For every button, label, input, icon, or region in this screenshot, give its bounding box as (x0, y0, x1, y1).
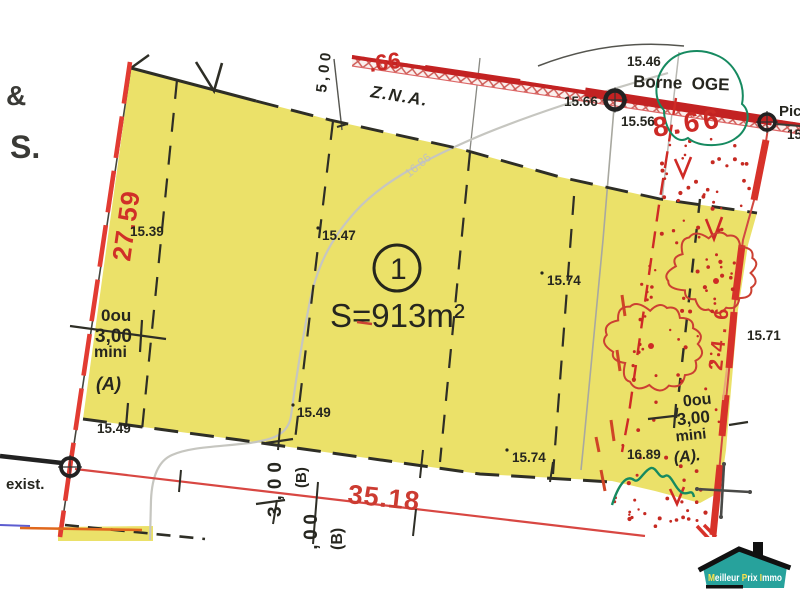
svg-text:15.66: 15.66 (564, 94, 598, 109)
svg-text:15.71: 15.71 (747, 328, 781, 343)
svg-text:exist.: exist. (6, 476, 44, 493)
svg-text:15.56: 15.56 (621, 114, 655, 129)
svg-text:Borne OGE: Borne OGE (633, 72, 730, 94)
svg-text:.66: .66 (367, 47, 402, 77)
svg-text:15.49: 15.49 (97, 421, 131, 436)
svg-text:mini: mini (675, 425, 707, 445)
svg-text:(B): (B) (329, 528, 346, 550)
svg-text:15.46: 15.46 (627, 54, 661, 69)
svg-text:&: & (6, 80, 26, 111)
svg-text:15.74: 15.74 (512, 450, 546, 465)
svg-text:mini: mini (94, 344, 127, 361)
svg-text:(A).: (A). (673, 447, 701, 467)
svg-text:S=913m²: S=913m² (330, 297, 465, 334)
svg-text:Pic: Pic (779, 103, 800, 120)
svg-text:16.89: 16.89 (627, 447, 661, 462)
svg-text:15.74: 15.74 (547, 273, 581, 288)
svg-text:1: 1 (390, 253, 407, 286)
svg-text:(B): (B) (293, 467, 310, 488)
svg-text:(A): (A) (96, 374, 121, 394)
svg-text:15.47: 15.47 (322, 228, 356, 243)
svg-text:15.: 15. (787, 127, 800, 142)
svg-text:S.: S. (10, 129, 40, 165)
svg-text:0ou: 0ou (101, 306, 131, 325)
svg-text:15.39: 15.39 (130, 224, 164, 239)
svg-text:15.49: 15.49 (297, 405, 331, 420)
svg-text:3,00: 3,00 (265, 462, 286, 517)
svg-text:Meilleur Prix Immo: Meilleur Prix Immo (708, 572, 782, 584)
